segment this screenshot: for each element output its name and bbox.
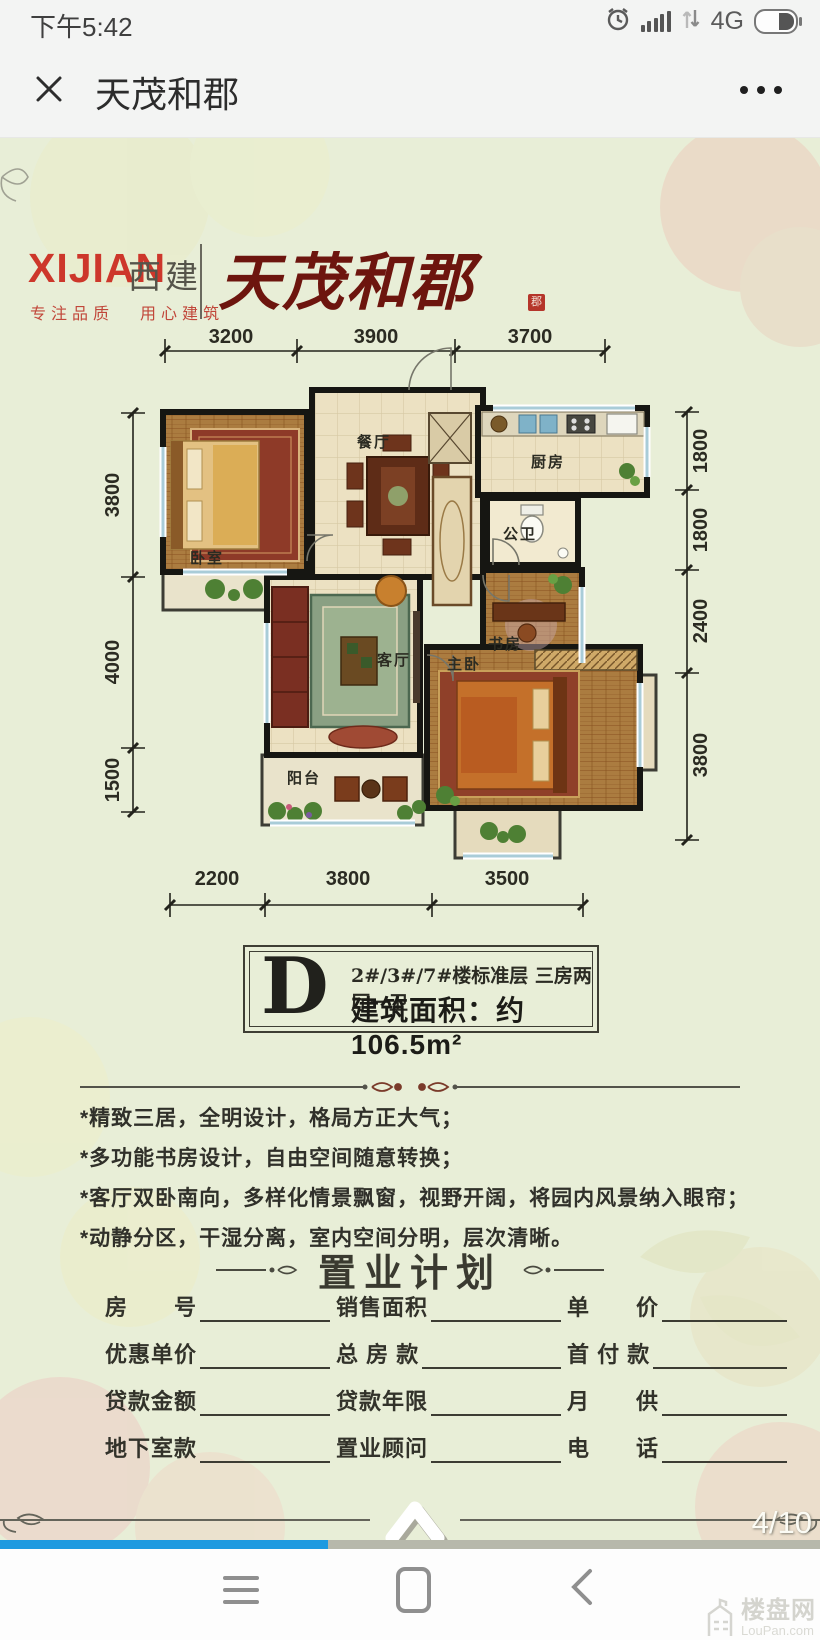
field-label: 优惠单价 <box>105 1337 197 1369</box>
room-label-living: 客厅 <box>376 651 411 669</box>
network-type-label: 4G <box>711 7 744 36</box>
dim-top-3: 3700 <box>508 326 553 348</box>
field-blank <box>662 1298 787 1322</box>
close-icon[interactable] <box>32 72 66 106</box>
watermark-en: LouPan.com <box>741 1623 816 1638</box>
dim-bottom-1: 2200 <box>195 868 240 890</box>
status-bar: 下午5:42 4G <box>0 0 820 42</box>
alarm-icon <box>605 6 631 37</box>
field-blank <box>200 1439 330 1463</box>
floorplan-svg: 3200 3900 3700 2200 3800 3500 3800 4000 … <box>95 325 725 950</box>
page-content: XIJIAN 西建 专注品质 用心建筑 天茂和郡 郡 <box>0 137 820 1549</box>
field-blank <box>431 1392 561 1416</box>
title-flourish-right <box>514 1262 604 1278</box>
scroll-to-top-chevron[interactable] <box>392 1508 441 1542</box>
field-blank <box>431 1298 561 1322</box>
field-blank <box>200 1345 330 1369</box>
loading-progress-bar <box>0 1540 328 1549</box>
field-label: 总 房 款 <box>336 1337 419 1369</box>
field-label: 首 付 款 <box>567 1337 650 1369</box>
ornament-divider <box>80 1077 740 1097</box>
feature-item: *客厅双卧南向，多样化情景飘窗，视野开阔，将园内风景纳入眼帘； <box>80 1179 760 1219</box>
dim-left-3: 1500 <box>102 758 124 803</box>
dim-left-1: 3800 <box>102 473 124 518</box>
field-label: 置业顾问 <box>336 1431 428 1463</box>
home-icon[interactable] <box>396 1567 431 1613</box>
title-flourish-left <box>216 1262 306 1278</box>
field-blank <box>200 1298 330 1322</box>
field-label: 地下室款 <box>105 1431 197 1463</box>
feature-list: *精致三居，全明设计，格局方正大气； *多功能书房设计，自由空间随意转换； *客… <box>80 1099 760 1259</box>
watermark-building-icon <box>703 1598 737 1638</box>
system-nav-bar: 楼盘网 LouPan.com <box>0 1549 820 1640</box>
page-title: 天茂和郡 <box>95 66 239 118</box>
back-icon[interactable] <box>568 1567 594 1612</box>
bottom-rule <box>0 1496 820 1546</box>
brand-divider <box>200 244 202 319</box>
dim-right-2: 1800 <box>690 508 712 553</box>
purchase-plan-form: 房 号 销售面积 单 价 优惠单价 总 房 款 首 付 款 贷款金额 贷款年限 … <box>105 1292 795 1463</box>
data-arrows-icon <box>681 7 701 36</box>
field-blank <box>662 1392 787 1416</box>
field-label: 销售面积 <box>336 1290 428 1322</box>
field-label: 贷款金额 <box>105 1384 197 1416</box>
loading-progress-track <box>0 1540 820 1549</box>
room-label-dining: 餐厅 <box>357 433 391 451</box>
floorplan-image: 3200 3900 3700 2200 3800 3500 3800 4000 … <box>95 325 725 950</box>
feature-item: *多功能书房设计，自由空间随意转换； <box>80 1139 760 1179</box>
title-bar: 天茂和郡 <box>0 42 820 138</box>
room-label-balcony: 阳台 <box>287 769 321 787</box>
dim-top-1: 3200 <box>209 326 254 348</box>
unit-area: 建筑面积：约106.5m² <box>351 989 599 1061</box>
developer-logo-cn: 西建 <box>128 250 202 298</box>
room-label-kitchen: 厨房 <box>531 453 565 471</box>
field-blank <box>200 1392 330 1416</box>
room-label-bedroom: 卧室 <box>190 549 224 567</box>
watermark-cn: 楼盘网 <box>741 1590 816 1625</box>
room-label-study: 书房 <box>488 635 522 653</box>
battery-icon <box>754 9 798 34</box>
brand-tagline-right: 用心建筑 <box>140 300 224 324</box>
plan-section-title: 置业计划 <box>0 1242 820 1297</box>
project-name-calligraphy: 天茂和郡 <box>218 232 474 322</box>
field-label: 电 话 <box>567 1431 659 1463</box>
dim-left-2: 4000 <box>102 640 124 685</box>
unit-letter: D <box>261 941 329 1032</box>
clock-time: 下午5:42 <box>30 7 133 44</box>
field-blank <box>662 1439 787 1463</box>
field-label: 贷款年限 <box>336 1384 428 1416</box>
feature-item: *精致三居，全明设计，格局方正大气； <box>80 1099 760 1139</box>
dim-right-4: 3800 <box>690 733 712 778</box>
page-indicator: 4/10 <box>752 1505 812 1541</box>
more-menu-icon[interactable] <box>740 86 782 94</box>
field-blank <box>431 1439 561 1463</box>
signal-icon <box>641 10 671 32</box>
field-blank <box>653 1345 787 1369</box>
dim-right-1: 1800 <box>690 429 712 474</box>
red-seal-stamp: 郡 <box>528 294 545 311</box>
dim-top-2: 3900 <box>354 326 399 348</box>
unit-info-badge: D 2#/3#/7#楼标准层 三房两厅一卫 建筑面积：约106.5m² <box>243 945 599 1033</box>
field-blank <box>422 1345 561 1369</box>
site-watermark: 楼盘网 LouPan.com <box>703 1590 816 1638</box>
dim-bottom-3: 3500 <box>485 868 530 890</box>
dim-right-3: 2400 <box>690 599 712 644</box>
phone-screen: 下午5:42 4G <box>0 0 820 1640</box>
field-label: 房 号 <box>105 1290 197 1322</box>
recents-icon[interactable] <box>223 1576 259 1612</box>
room-label-master: 主卧 <box>447 655 481 673</box>
field-label: 单 价 <box>567 1290 659 1322</box>
field-label: 月 供 <box>567 1384 659 1416</box>
dim-bottom-2: 3800 <box>326 868 371 890</box>
brand-tagline-left: 专注品质 <box>30 300 114 324</box>
room-label-bath: 公卫 <box>503 526 537 543</box>
